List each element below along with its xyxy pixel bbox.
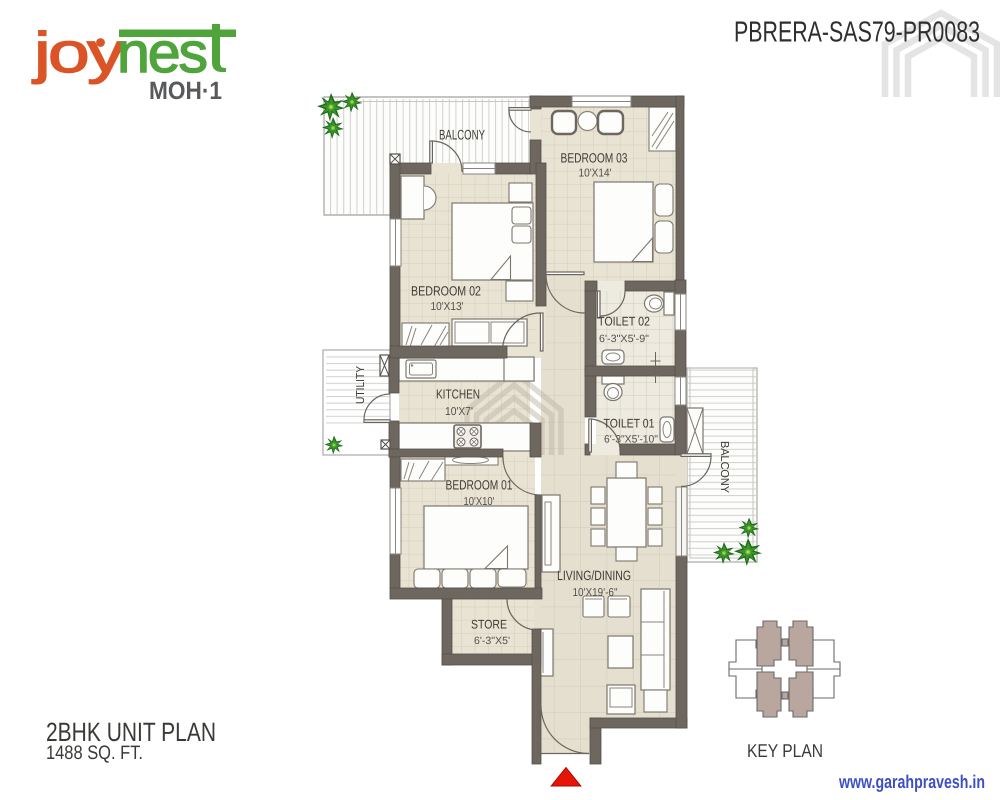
svg-text:10'X19'-6": 10'X19'-6": [573, 587, 618, 599]
svg-text:6'-3"X5'-9": 6'-3"X5'-9": [599, 333, 649, 345]
svg-text:BALCONY: BALCONY: [718, 441, 730, 493]
svg-text:KITCHEN: KITCHEN: [436, 387, 480, 402]
svg-text:BEDROOM 03: BEDROOM 03: [561, 151, 628, 166]
svg-text:PBRERA-SAS79-PR0083: PBRERA-SAS79-PR0083: [734, 17, 980, 49]
svg-text:6'-3"X5': 6'-3"X5': [474, 635, 510, 647]
svg-text:LIVING/DINING: LIVING/DINING: [557, 568, 631, 583]
svg-text:MOH·1: MOH·1: [149, 77, 222, 105]
svg-text:UTILITY: UTILITY: [355, 366, 367, 404]
svg-text:10'X14': 10'X14': [579, 168, 612, 180]
svg-text:10'X13': 10'X13': [431, 301, 464, 313]
svg-text:STORE: STORE: [471, 618, 507, 632]
svg-text:BEDROOM 02: BEDROOM 02: [411, 284, 481, 299]
svg-text:6'-3"X5'-10": 6'-3"X5'-10": [604, 434, 658, 446]
svg-text:1488 SQ. FT.: 1488 SQ. FT.: [46, 742, 143, 764]
svg-text:BEDROOM 01: BEDROOM 01: [446, 478, 513, 493]
svg-text:10'X10': 10'X10': [464, 496, 495, 508]
svg-text:KEY PLAN: KEY PLAN: [747, 740, 823, 761]
svg-text:joy: joy: [31, 21, 125, 85]
svg-text:BALCONY: BALCONY: [439, 127, 485, 143]
svg-text:10'X7': 10'X7': [445, 406, 473, 418]
svg-text:TOILET 02: TOILET 02: [598, 315, 650, 329]
svg-text:www.garahpravesh.in: www.garahpravesh.in: [838, 771, 985, 792]
svg-text:TOILET 01: TOILET 01: [604, 417, 655, 431]
